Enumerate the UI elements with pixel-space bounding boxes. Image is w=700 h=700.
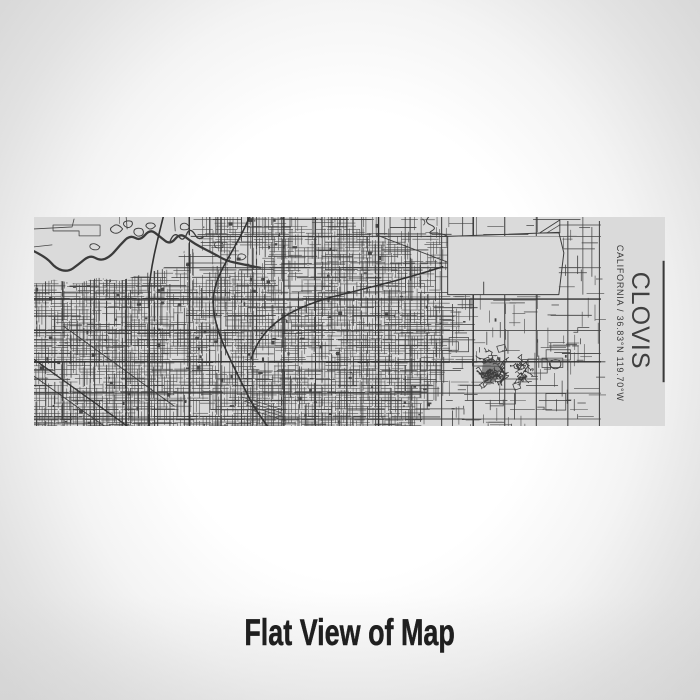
svg-text:CLOVIS: CLOVIS	[626, 272, 654, 370]
svg-text:CALIFORNIA / 36.83°N 119.70°W: CALIFORNIA / 36.83°N 119.70°W	[615, 245, 625, 402]
